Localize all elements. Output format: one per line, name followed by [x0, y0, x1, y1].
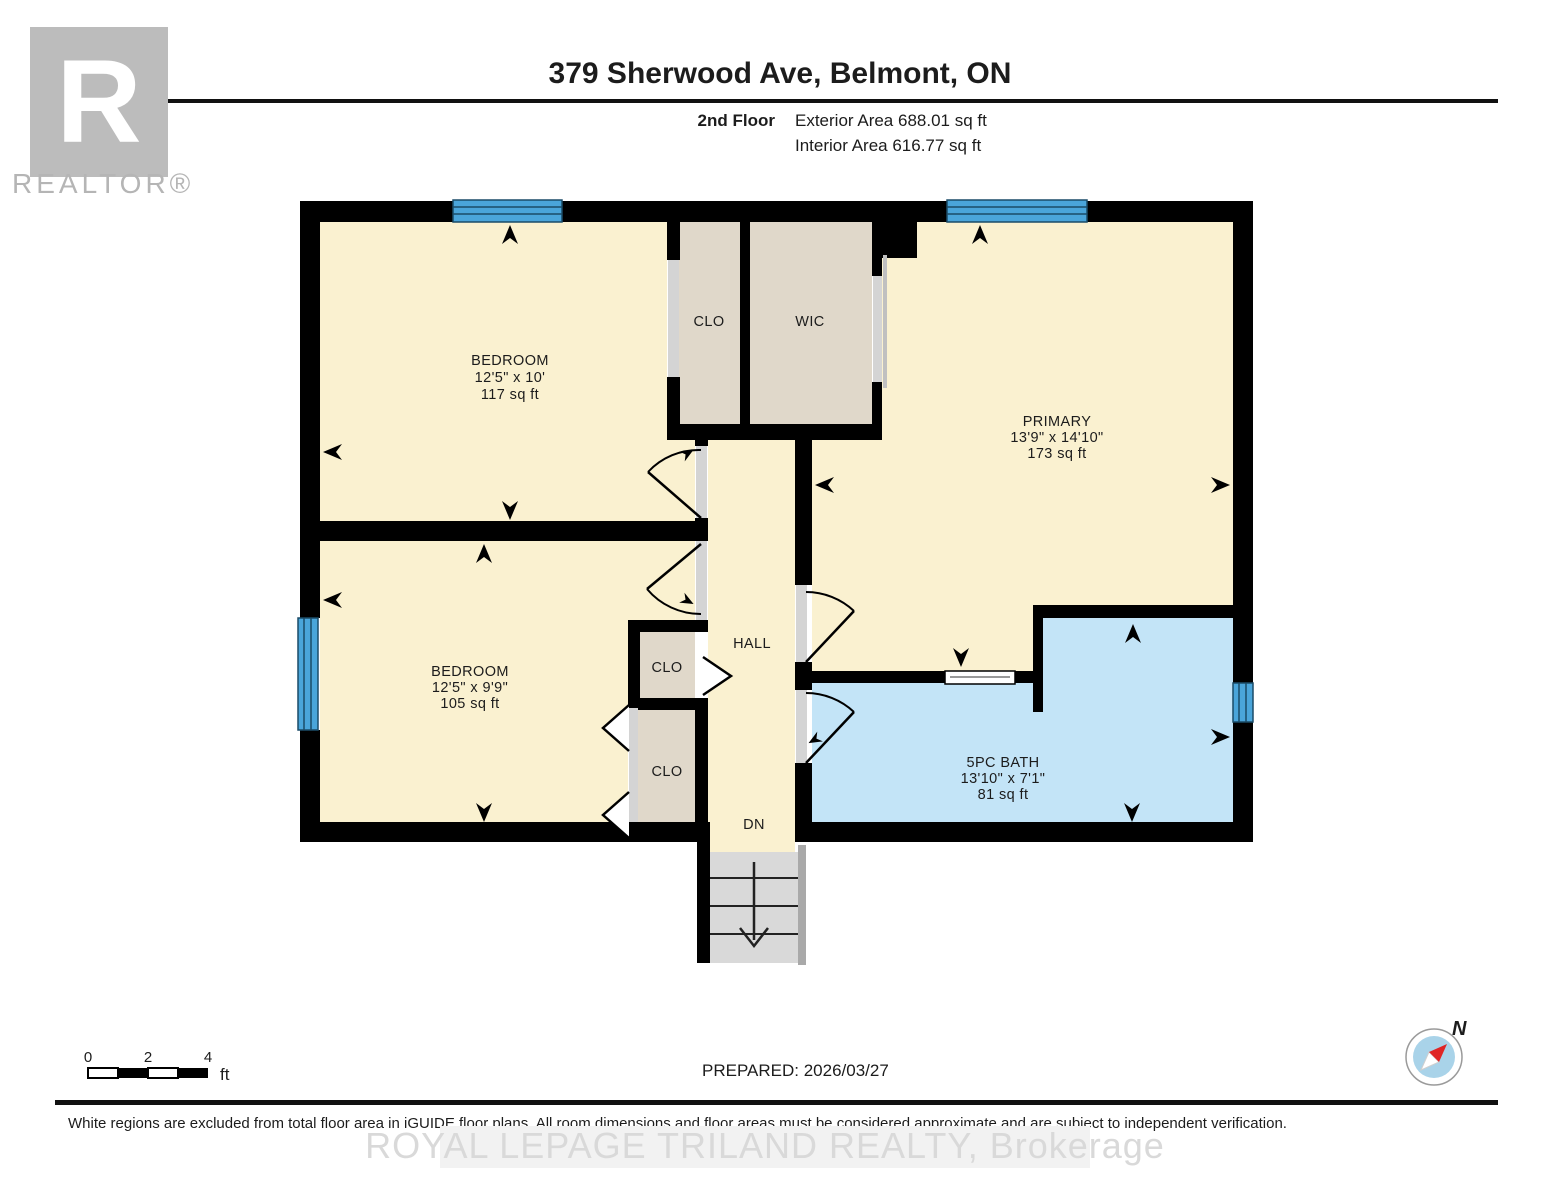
- label-closet-bottom: CLO: [651, 764, 682, 780]
- door-wic-sliding: [873, 276, 882, 382]
- prepared-date: PREPARED: 2026/03/27: [702, 1061, 889, 1080]
- header-divider: [55, 99, 1498, 103]
- label-primary-name: PRIMARY: [1023, 414, 1092, 430]
- stairs-rail: [798, 845, 806, 965]
- label-primary-dims: 13'9" x 14'10": [1010, 430, 1103, 446]
- label-primary-area: 173 sq ft: [1027, 446, 1086, 462]
- realtor-logo-text: REALTOR®: [12, 168, 194, 199]
- label-bedroom1-name: BEDROOM: [471, 353, 549, 369]
- window-primary-top: [947, 200, 1087, 222]
- window-bedroom2-left: [298, 618, 318, 730]
- label-bedroom2-dims: 12'5" x 9'9": [432, 680, 508, 696]
- scale-tick-0: 0: [84, 1049, 92, 1066]
- scale-unit: ft: [220, 1065, 230, 1084]
- label-hall: HALL: [733, 636, 771, 652]
- label-closet-mid: CLO: [651, 660, 682, 676]
- stairs: [710, 845, 806, 965]
- floor-label: 2nd Floor: [698, 111, 776, 130]
- page-title: 379 Sherwood Ave, Belmont, ON: [549, 57, 1012, 90]
- label-bedroom1-area: 117 sq ft: [481, 387, 539, 403]
- door-bedroom1: [696, 446, 707, 518]
- floorplan-page: 379 Sherwood Ave, Belmont, ON 2nd Floor …: [0, 0, 1553, 1200]
- label-closet-top: CLO: [693, 314, 724, 330]
- door-closet-top-sliding: [668, 260, 679, 377]
- label-bedroom2-area: 105 sq ft: [440, 696, 499, 712]
- floorplan-svg: 379 Sherwood Ave, Belmont, ON 2nd Floor …: [0, 0, 1553, 1200]
- door-primary: [796, 585, 807, 662]
- realtor-logo-letter: R: [56, 36, 141, 168]
- footer: White regions are excluded from total fl…: [55, 1100, 1498, 1168]
- label-bath-dims: 13'10" x 7'1": [961, 771, 1046, 787]
- label-bath-area: 81 sq ft: [978, 787, 1029, 803]
- scale-tick-2: 2: [144, 1049, 152, 1066]
- scale-tick-4: 4: [204, 1049, 212, 1066]
- header: 379 Sherwood Ave, Belmont, ON 2nd Floor …: [55, 57, 1498, 155]
- door-bath: [796, 690, 807, 763]
- window-bath-right: [1233, 683, 1253, 722]
- interior-area: Interior Area 616.77 sq ft: [795, 136, 981, 155]
- scale-bar: 0 2 4 ft: [84, 1049, 230, 1084]
- door-bedroom2: [696, 541, 707, 620]
- realtor-logo: R REALTOR®: [12, 27, 194, 199]
- brokerage-watermark: ROYAL LEPAGE TRILAND REALTY, Brokerage: [365, 1125, 1165, 1166]
- label-bath-name: 5PC BATH: [966, 755, 1039, 771]
- footer-divider: [55, 1100, 1498, 1105]
- compass: N: [1406, 1018, 1467, 1085]
- pocket-door-bath: [945, 671, 1015, 684]
- window-bedroom1-top: [453, 200, 562, 222]
- label-bedroom1-dims: 12'5" x 10': [475, 370, 546, 386]
- label-wic: WIC: [795, 314, 824, 330]
- label-stairs-dn: DN: [743, 817, 765, 833]
- floorplan: BEDROOM 12'5" x 10' 117 sq ft CLO WIC PR…: [298, 200, 1253, 965]
- compass-north-label: N: [1452, 1018, 1467, 1040]
- door-wic-leaf: [883, 255, 887, 388]
- label-bedroom2-name: BEDROOM: [431, 664, 509, 680]
- door-closet-bottom-track: [629, 708, 638, 822]
- exterior-area: Exterior Area 688.01 sq ft: [795, 111, 987, 130]
